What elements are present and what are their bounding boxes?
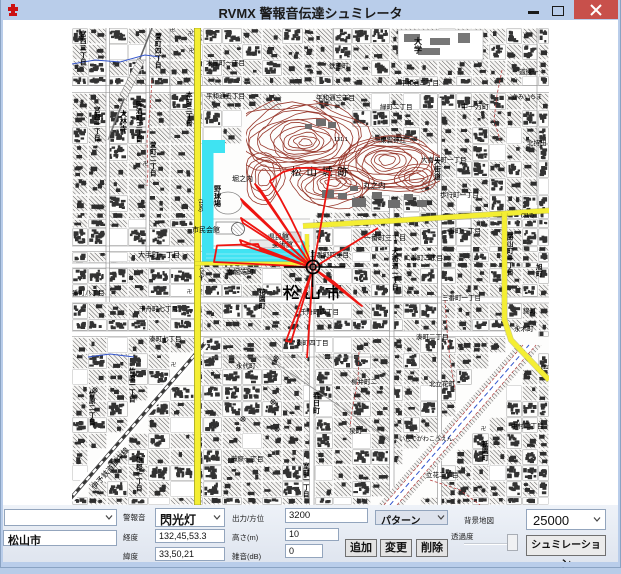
svg-text:中村二丁目: 中村二丁目 — [511, 421, 544, 430]
svg-text:藤原一丁目: 藤原一丁目 — [231, 454, 264, 463]
svg-text:北持田: 北持田 — [527, 138, 547, 147]
svg-text:卍: 卍 — [171, 362, 176, 368]
svg-text:室町一丁目: 室町一丁目 — [303, 461, 310, 498]
svg-text:大林寺: 大林寺 — [120, 109, 128, 133]
svg-text:いしてがわこうえん: いしてがわこうえん — [399, 435, 453, 443]
svg-text:卍: 卍 — [189, 48, 194, 54]
svg-text:立花二丁目: 立花二丁目 — [426, 470, 459, 479]
svg-text:木屋町一丁目: 木屋町一丁目 — [206, 58, 245, 67]
svg-text:錦町: 錦町 — [523, 306, 537, 315]
svg-text:宮西一丁目: 宮西一丁目 — [94, 105, 101, 142]
svg-text:卍: 卍 — [170, 28, 175, 33]
svg-text:二番町二丁目: 二番町二丁目 — [404, 254, 443, 262]
svg-text:(56): (56) — [198, 268, 204, 278]
svg-text:味酒町三丁目: 味酒町三丁目 — [136, 99, 143, 144]
svg-text:緑町二丁目: 緑町二丁目 — [380, 102, 413, 111]
svg-text:卍: 卍 — [188, 31, 193, 37]
svg-text:祇園町: 祇園町 — [481, 439, 489, 462]
svg-text:湊町七丁目: 湊町七丁目 — [149, 334, 182, 343]
svg-text:大学: 大学 — [414, 36, 422, 55]
svg-text:永木町: 永木町 — [514, 324, 534, 333]
svg-text:北立花町: 北立花町 — [429, 379, 456, 388]
svg-text:本町三丁目: 本町三丁目 — [186, 90, 193, 127]
svg-text:旭町: 旭町 — [535, 262, 543, 278]
svg-text:東雲神社: 東雲神社 — [380, 135, 407, 144]
svg-text:(196): (196) — [197, 199, 203, 212]
svg-text:南堀端町: 南堀端町 — [226, 267, 254, 276]
svg-text:かみいちま: かみいちま — [512, 94, 542, 101]
svg-text:泉町: 泉町 — [349, 426, 363, 435]
svg-text:千舟町四丁目: 千舟町四丁目 — [300, 307, 339, 316]
svg-text:一番町三丁目: 一番町三丁目 — [364, 234, 406, 242]
svg-text:千舟町七丁目: 千舟町七丁目 — [139, 304, 178, 313]
svg-text:卍: 卍 — [187, 289, 192, 295]
svg-text:宮西二丁目: 宮西二丁目 — [80, 29, 87, 66]
svg-text:花園町: 花園町 — [259, 287, 266, 310]
svg-text:131.1: 131.1 — [334, 137, 348, 143]
svg-text:萱町四丁目: 萱町四丁目 — [155, 32, 162, 69]
svg-text:一番町一丁目: 一番町一丁目 — [442, 227, 481, 235]
svg-text:永代町: 永代町 — [236, 361, 256, 370]
svg-text:春日町: 春日町 — [312, 391, 321, 415]
svg-text:野球場: 野球場 — [214, 184, 222, 208]
svg-text:堀之内: 堀之内 — [232, 174, 253, 183]
svg-text:柳井町二: 柳井町二 — [351, 377, 378, 386]
svg-text:三番町一丁目: 三番町一丁目 — [442, 294, 481, 302]
svg-text:卍: 卍 — [143, 161, 148, 167]
svg-text:道後一: 道後一 — [519, 67, 539, 76]
svg-text:丸之内: 丸之内 — [363, 180, 386, 190]
svg-text:大喜与町一丁目: 大喜与町一丁目 — [421, 155, 467, 164]
svg-text:鉄砲町: 鉄砲町 — [329, 61, 349, 70]
svg-text:雄郡一丁目: 雄郡一丁目 — [135, 455, 143, 492]
svg-text:平和通五丁目: 平和通五丁目 — [206, 91, 245, 100]
svg-text:(11): (11) — [541, 365, 549, 371]
svg-text:市民会館: 市民会館 — [192, 225, 220, 234]
svg-text:萱町二丁目: 萱町二丁目 — [150, 140, 157, 177]
svg-text:番町八丁目: 番町八丁目 — [72, 289, 105, 297]
svg-text:大街道一丁目: 大街道一丁目 — [391, 247, 399, 292]
svg-text:(317): (317) — [521, 213, 534, 219]
svg-text:大手町一丁目: 大手町一丁目 — [138, 250, 180, 259]
svg-text:勝山町一丁目: 勝山町一丁目 — [507, 232, 514, 277]
svg-text:竹原一丁目: 竹原一丁目 — [128, 366, 136, 403]
svg-text:湊町二丁目: 湊町二丁目 — [416, 332, 449, 341]
svg-text:平和通三丁目: 平和通三丁目 — [316, 93, 355, 102]
svg-text:平和通二丁目: 平和通二丁目 — [400, 78, 439, 87]
svg-text:中一万町: 中一万町 — [461, 102, 489, 111]
svg-text:竹原二丁目: 竹原二丁目 — [88, 389, 96, 426]
svg-text:湊町四丁目: 湊町四丁目 — [296, 338, 329, 347]
svg-text:松山城跡: 松山城跡 — [291, 165, 353, 178]
svg-text:歩行町一丁目: 歩行町一丁目 — [440, 190, 479, 199]
svg-text:卍: 卍 — [481, 426, 486, 432]
